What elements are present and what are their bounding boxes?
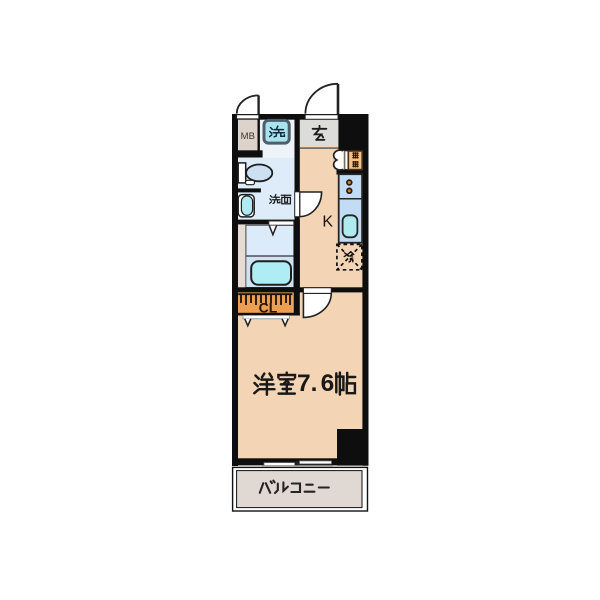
svg-text:7.: 7.	[297, 370, 317, 397]
svg-text:K: K	[322, 213, 333, 230]
svg-text:6: 6	[321, 370, 335, 397]
svg-text:MB: MB	[241, 131, 255, 142]
